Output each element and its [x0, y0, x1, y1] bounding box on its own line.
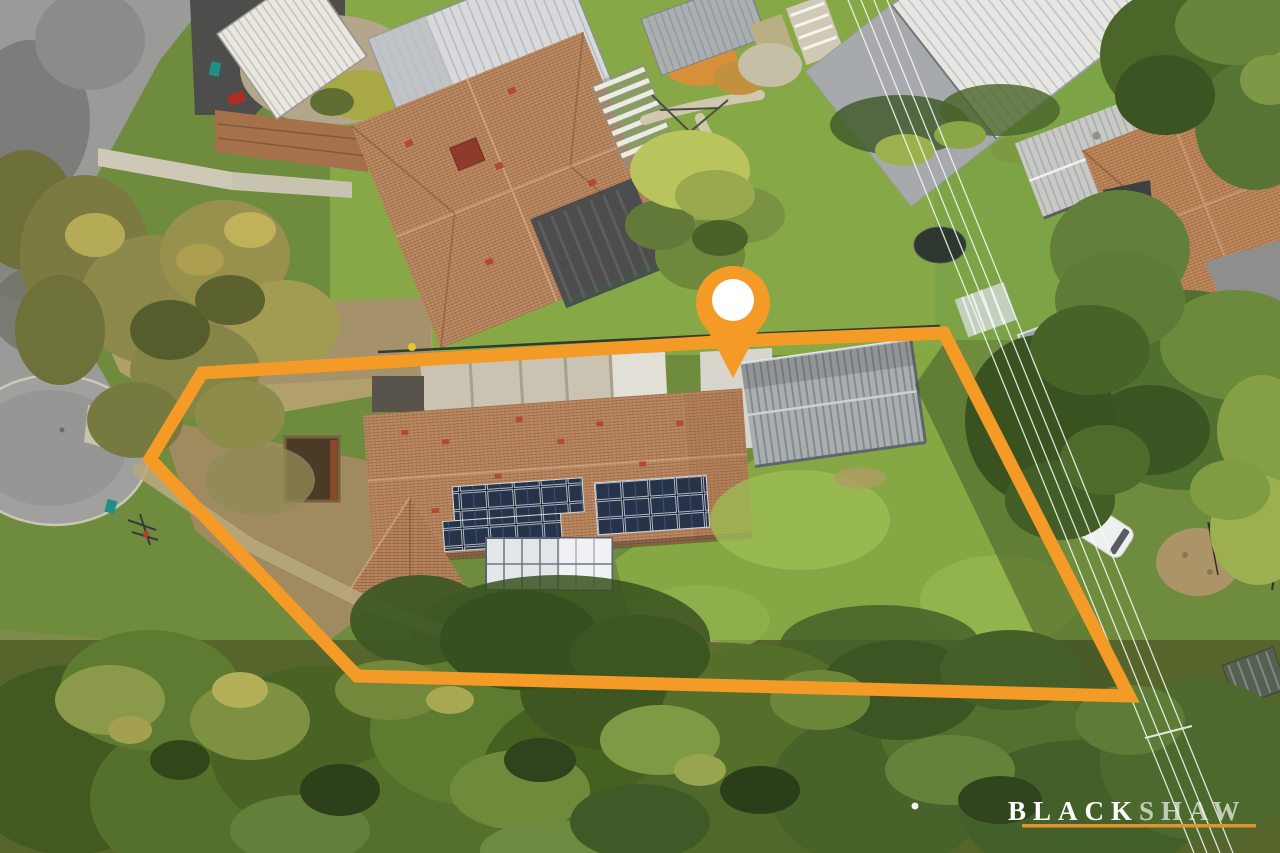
pin-inner-circle — [712, 279, 754, 321]
brand-watermark: BLACKSHAW — [1008, 796, 1256, 828]
brand-logo-text: BLACKSHAW — [1008, 796, 1247, 826]
dark-wall — [372, 376, 424, 412]
dark-frame — [914, 227, 966, 263]
solar-array-right — [594, 475, 709, 535]
brand-logo-bold: BLACK — [1008, 796, 1139, 826]
brand-logo-light: SHAW — [1139, 796, 1247, 826]
brand-underline — [1022, 824, 1256, 828]
aerial-photo: BLACKSHAW — [0, 0, 1280, 853]
white-ball — [912, 803, 919, 810]
aerial-photo-canvas: BLACKSHAW — [0, 0, 1280, 853]
garage-shed — [741, 340, 926, 467]
